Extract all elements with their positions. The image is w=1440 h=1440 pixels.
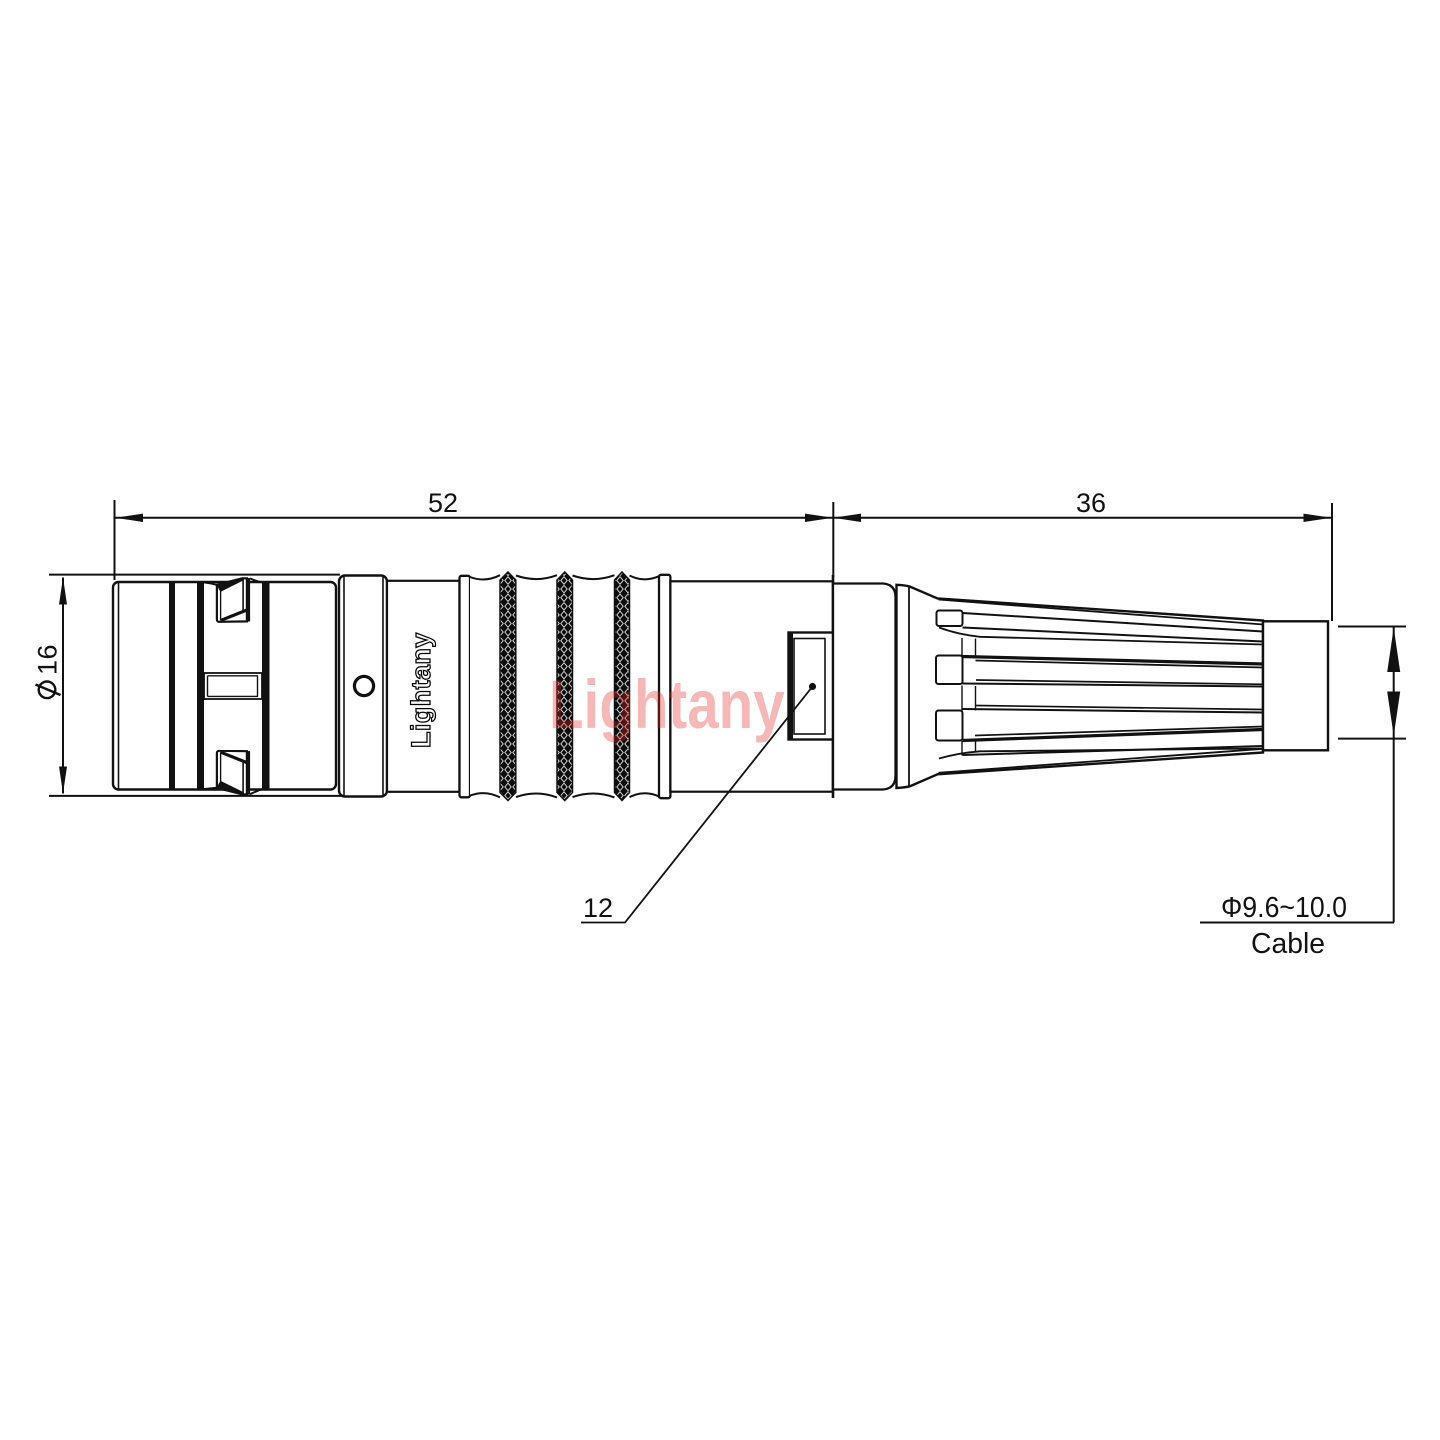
svg-text:Lightany: Lightany xyxy=(406,632,436,748)
svg-text:16: 16 xyxy=(33,644,63,675)
svg-text:12: 12 xyxy=(583,893,613,923)
svg-text:Cable: Cable xyxy=(1251,928,1325,960)
svg-text:Φ9.6~10.0: Φ9.6~10.0 xyxy=(1221,892,1347,924)
svg-text:36: 36 xyxy=(1076,488,1106,518)
svg-text:Lightany: Lightany xyxy=(549,667,785,744)
svg-text:52: 52 xyxy=(428,488,458,518)
